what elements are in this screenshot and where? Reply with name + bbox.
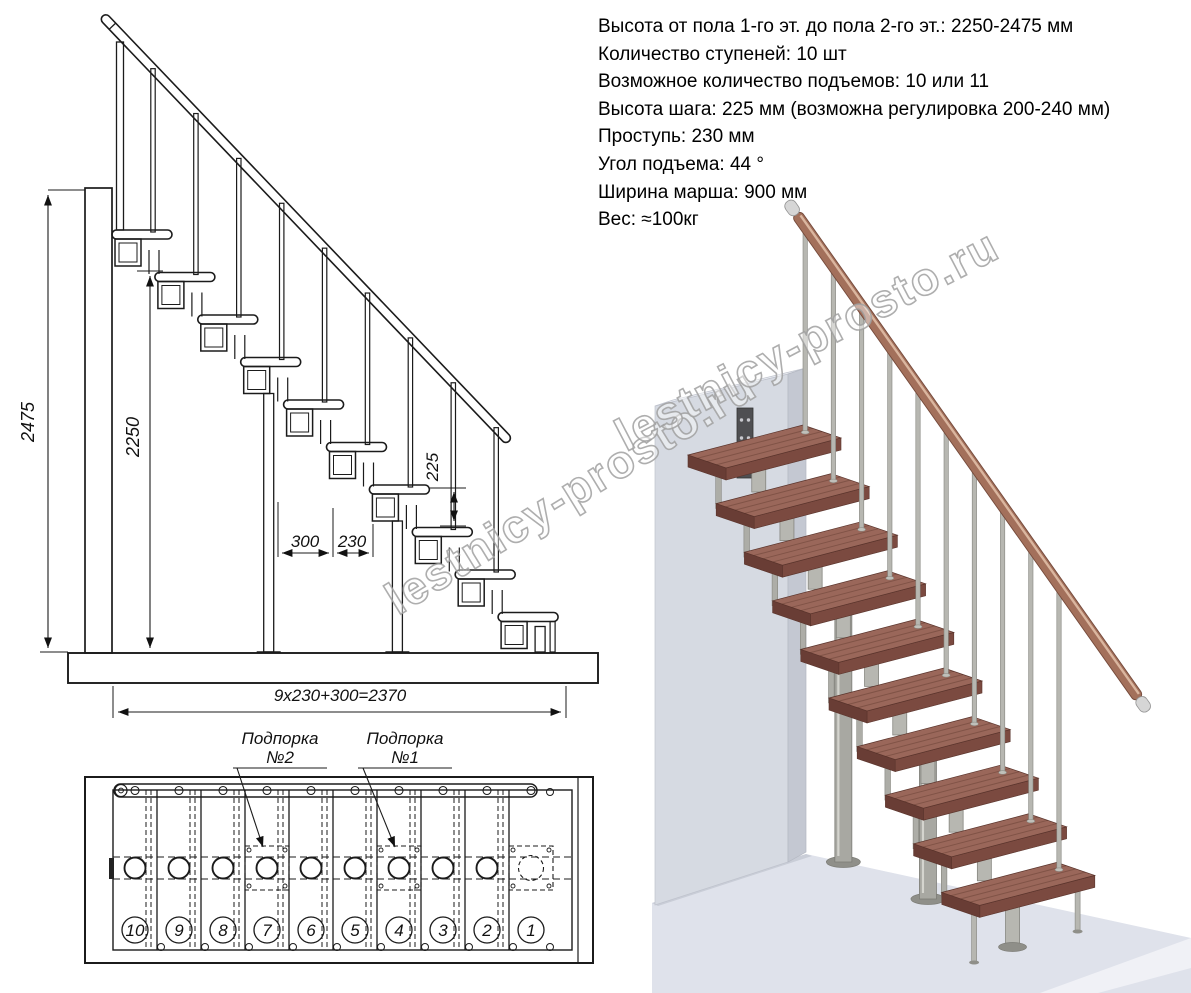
dim-text-total-run: 9x230+300=2370: [274, 686, 407, 705]
dim-text-300: 300: [291, 532, 320, 551]
side-tread: [155, 273, 215, 282]
plan-support-pipe: [169, 858, 190, 879]
handrail-band: [99, 13, 512, 444]
baluster-foot: [999, 771, 1007, 775]
side-tread: [284, 400, 344, 409]
side-tread: [498, 613, 558, 622]
plan-support-labels: Подпорка №2 Подпорка №1: [233, 729, 452, 847]
plate-bolt-hole: [747, 418, 750, 421]
side-view-handrail: [99, 13, 512, 444]
baluster-foot: [1055, 868, 1063, 872]
side-tread: [241, 358, 301, 367]
specifications-block: Высота от пола 1-го эт. до пола 2-го эт.…: [598, 13, 1183, 234]
side-baluster: [365, 293, 369, 444]
spec-line-weight: Вес: ≈100кг: [598, 206, 1183, 234]
plate-bolt-hole: [740, 436, 743, 439]
baluster-foot: [858, 528, 866, 532]
side-baluster: [451, 383, 455, 530]
render-3d-staircase: [652, 198, 1191, 993]
plan-step-number: 9: [174, 921, 184, 940]
plan-stringer-end: [109, 858, 114, 879]
side-module-inner: [205, 328, 223, 347]
plan-support-pipe: [257, 858, 278, 879]
support1-number: №1: [391, 748, 419, 767]
spec-line-step-height: Высота шага: 225 мм (возможна регулировк…: [598, 96, 1183, 124]
side-upper-floor-wall: [85, 188, 112, 653]
plan-step-number: 8: [218, 921, 228, 940]
handrail-cap-joint: [109, 23, 116, 29]
support2-label: Подпорка: [242, 729, 319, 748]
support2-number: №2: [266, 748, 294, 767]
baluster-3d: [888, 346, 892, 579]
plan-base-plate-step1: [509, 846, 553, 890]
baluster-foot: [886, 576, 894, 580]
side-tread: [369, 485, 429, 494]
side-baluster: [117, 42, 124, 230]
plan-step-number: 7: [262, 921, 272, 940]
plan-support1-plate: [377, 846, 421, 890]
side-module-inner: [162, 286, 180, 305]
plan-support-pipe: [477, 858, 498, 879]
spec-line-tread: Проступь: 230 мм: [598, 123, 1183, 151]
spec-line-height-range: Высота от пола 1-го эт. до пола 2-го эт.…: [598, 13, 1183, 41]
support1-label: Подпорка: [367, 729, 444, 748]
plan-step-number: 6: [306, 921, 316, 940]
plan-step-number: 5: [350, 921, 360, 940]
plan-support-pipe: [213, 858, 234, 879]
plan-outer-frame: [85, 777, 593, 963]
side-floor-slab: [68, 653, 598, 683]
plan-step-number: 2: [481, 921, 492, 940]
side-baluster: [280, 203, 284, 359]
front-leg: [972, 911, 977, 961]
plan-step-number: 1: [526, 921, 535, 940]
dim-text-230: 230: [337, 532, 367, 551]
plan-support-pipe: [433, 858, 454, 879]
spec-line-rise-count: Возможное количество подъемов: 10 или 11: [598, 68, 1183, 96]
dim-text-2475: 2475: [18, 401, 38, 443]
side-view-structure: [68, 188, 598, 683]
side-module-inner: [291, 413, 309, 432]
side-last-step-leg: [550, 622, 555, 653]
baluster-3d: [916, 386, 920, 628]
side-baluster: [322, 248, 326, 402]
baluster-foot: [801, 431, 809, 435]
plan-support-pipe: [125, 858, 146, 879]
baluster-foot: [829, 479, 837, 483]
side-tread: [198, 315, 258, 324]
spec-line-width: Ширина марша: 900 мм: [598, 179, 1183, 207]
side-view-dimensions: 2475 2250 225 300 230 9x230+300=2370: [18, 190, 566, 718]
support2-leader: [237, 768, 263, 847]
leg-foot: [969, 960, 979, 964]
side-baluster: [237, 158, 241, 317]
spine-base: [999, 943, 1027, 952]
side-tread: [327, 443, 387, 452]
side-module-inner: [334, 456, 352, 475]
side-baluster: [408, 338, 412, 487]
plan-view: 10987654321: [85, 729, 593, 963]
plan-support-pipe: [345, 858, 366, 879]
plan-step-number: 4: [394, 921, 403, 940]
side-tread: [112, 230, 172, 239]
spec-line-step-count: Количество ступеней: 10 шт: [598, 41, 1183, 69]
baluster-3d: [1000, 506, 1004, 774]
plan-support-pipe: [301, 858, 322, 879]
plan-support-pipe: [389, 858, 410, 879]
baluster-foot: [942, 674, 950, 678]
plan-support2-plate: [245, 846, 289, 890]
side-module-inner: [505, 626, 523, 645]
side-last-step-leg: [535, 627, 545, 653]
plate-bolt-hole: [740, 418, 743, 421]
baluster-foot: [970, 722, 978, 726]
baluster-3d: [1057, 585, 1061, 870]
plan-generated: 10987654321: [113, 784, 572, 951]
stairs-spec-sheet: 2475 2250 225 300 230 9x230+300=2370 109…: [0, 0, 1191, 993]
baluster-3d: [972, 466, 976, 725]
baluster-3d: [1029, 546, 1033, 823]
baluster-foot: [1027, 819, 1035, 823]
side-baluster: [151, 69, 155, 232]
leg-foot: [1073, 929, 1083, 933]
dim-text-2250: 2250: [123, 417, 143, 458]
baluster-3d: [944, 426, 948, 676]
dim-text-225: 225: [423, 452, 442, 482]
side-baluster: [194, 114, 198, 275]
spec-line-angle: Угол подъема: 44 °: [598, 151, 1183, 179]
side-module-inner: [119, 243, 137, 262]
side-module-inner: [376, 498, 394, 517]
side-module-inner: [248, 371, 266, 390]
plan-step-number: 10: [126, 921, 145, 940]
plan-step-number: 3: [438, 921, 448, 940]
side-support-post: [264, 394, 274, 653]
baluster-foot: [914, 625, 922, 629]
support1-leader: [363, 768, 395, 847]
